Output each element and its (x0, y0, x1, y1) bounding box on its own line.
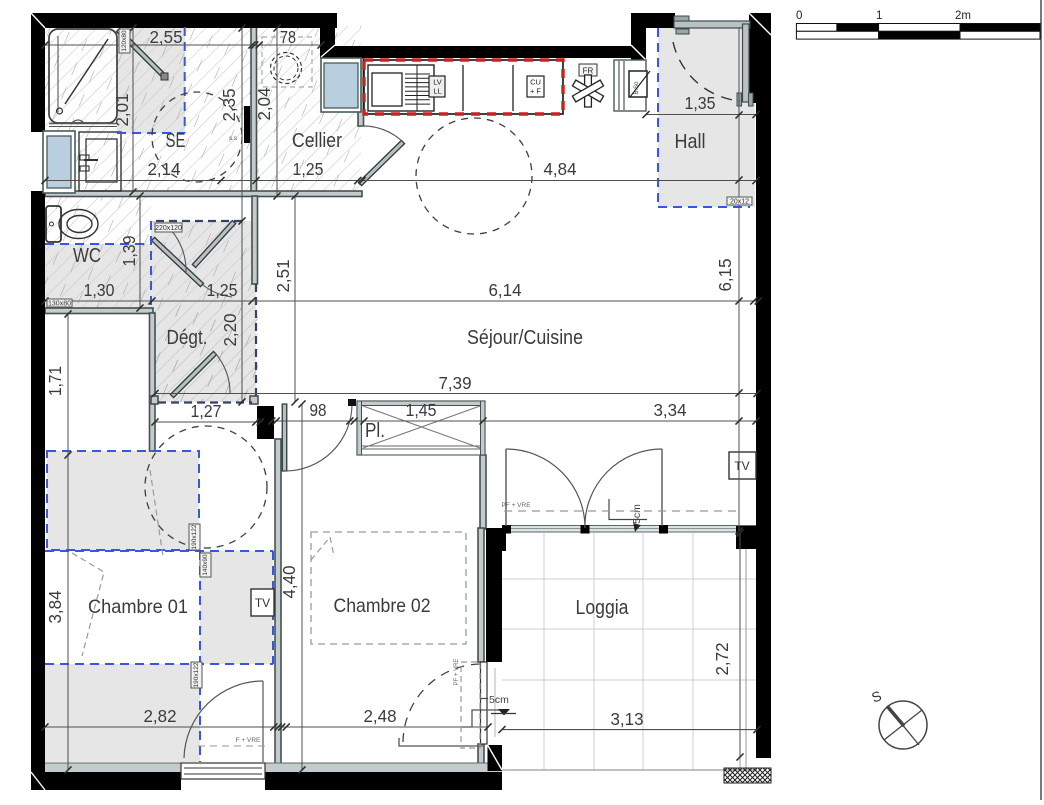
svg-text:1,25: 1,25 (207, 280, 238, 300)
svg-text:2,82: 2,82 (144, 706, 177, 726)
svg-text:3,84: 3,84 (45, 590, 65, 623)
svg-text:FR: FR (583, 67, 594, 76)
svg-text:1,45: 1,45 (406, 400, 437, 420)
svg-text:0: 0 (796, 10, 802, 22)
svg-text:Dégt.: Dégt. (167, 327, 208, 349)
svg-text:2,51: 2,51 (273, 260, 293, 293)
svg-text:1,39: 1,39 (119, 236, 139, 267)
svg-text:1,71: 1,71 (45, 366, 65, 396)
svg-text:2m: 2m (955, 10, 971, 22)
svg-text:Hall: Hall (675, 131, 706, 153)
svg-text:5cm: 5cm (489, 694, 509, 706)
svg-text:1,35: 1,35 (685, 93, 716, 113)
svg-text:SE: SE (166, 130, 186, 152)
svg-text:1: 1 (876, 10, 882, 22)
svg-text:Chambre 02: Chambre 02 (334, 595, 431, 617)
svg-text:Chambre 01: Chambre 01 (88, 596, 188, 618)
svg-text:2,20: 2,20 (220, 313, 240, 346)
svg-text:WC: WC (73, 245, 101, 267)
svg-text:190x122: 190x122 (193, 662, 200, 687)
svg-text:2,48: 2,48 (364, 706, 397, 726)
svg-text:2,35: 2,35 (219, 89, 239, 122)
svg-text:120x80: 120x80 (121, 30, 128, 52)
svg-text:Cellier: Cellier (292, 130, 342, 152)
svg-text:1,30: 1,30 (84, 280, 115, 300)
svg-text:2,72: 2,72 (712, 643, 732, 676)
svg-text:Pl.: Pl. (365, 420, 385, 442)
svg-text:TV: TV (734, 459, 749, 473)
svg-text:78: 78 (280, 27, 296, 47)
svg-text:s.s: s.s (229, 136, 237, 142)
svg-text:2,14: 2,14 (148, 159, 181, 179)
svg-text:220x120: 220x120 (155, 225, 182, 232)
svg-text:2,01: 2,01 (112, 94, 132, 127)
svg-text:4,40: 4,40 (279, 565, 299, 598)
svg-text:130x80: 130x80 (48, 300, 71, 307)
svg-text:140x90: 140x90 (202, 554, 209, 576)
svg-text:1,25: 1,25 (293, 159, 324, 179)
svg-text:2,55: 2,55 (150, 27, 183, 47)
svg-text:Séjour/Cuisine: Séjour/Cuisine (467, 327, 583, 349)
svg-text:F + VRE: F + VRE (236, 737, 261, 744)
svg-text:4,84: 4,84 (544, 159, 577, 179)
svg-text:1,27: 1,27 (191, 401, 222, 421)
svg-text:TV: TV (255, 596, 270, 610)
svg-text:Loggia: Loggia (576, 597, 630, 619)
svg-text:LL: LL (433, 87, 441, 96)
svg-text:2,04: 2,04 (254, 87, 274, 120)
svg-text:6,15: 6,15 (715, 259, 735, 292)
svg-text:6,14: 6,14 (489, 280, 522, 300)
svg-text:LV: LV (433, 78, 442, 87)
svg-text:190x122: 190x122 (191, 524, 198, 549)
svg-text:7,39: 7,39 (439, 373, 472, 393)
svg-text:98: 98 (310, 400, 327, 420)
svg-text:5cm: 5cm (631, 504, 643, 524)
svg-text:3,34: 3,34 (654, 400, 687, 420)
svg-text:+ F: + F (530, 87, 541, 96)
svg-text:PF + VRE: PF + VRE (501, 502, 531, 509)
svg-text:CU: CU (530, 78, 541, 87)
svg-text:20x12: 20x12 (730, 198, 749, 205)
svg-text:PF + VRE: PF + VRE (454, 659, 460, 686)
svg-text:3,13: 3,13 (611, 709, 644, 729)
